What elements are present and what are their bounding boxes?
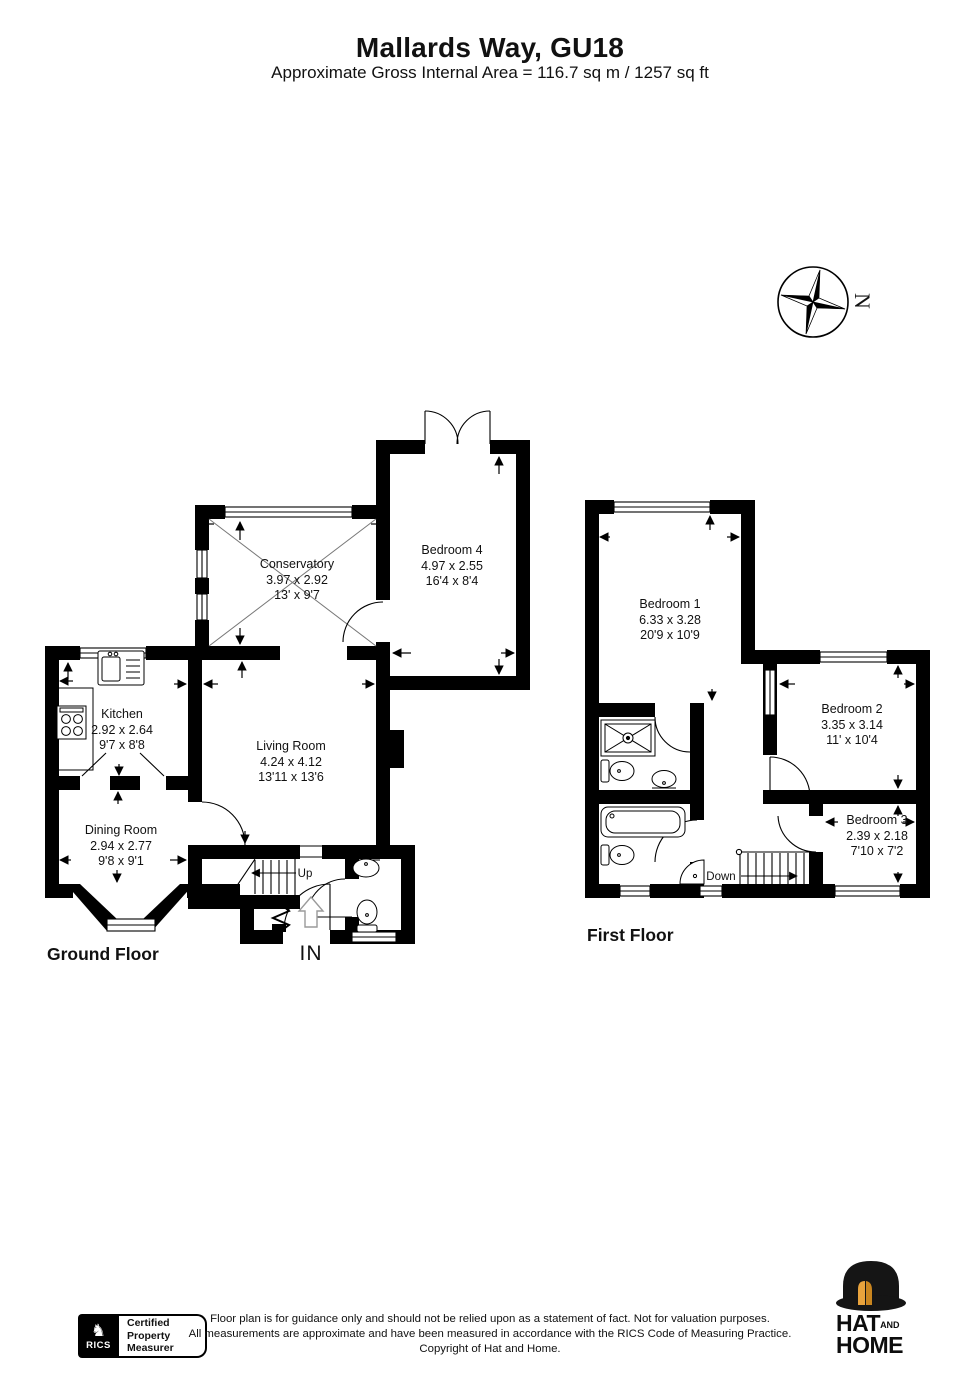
room-metric-dims: 3.97 x 2.92 (260, 572, 334, 588)
logo-word-and: AND (880, 1320, 900, 1330)
disclaimer-line-2: All measurements are approximate and hav… (140, 1327, 840, 1342)
bathroom-corner-sink-icon (680, 860, 704, 884)
rics-logo: ♞ RICS (78, 1314, 119, 1358)
room-imperial-dims: 11' x 10'4 (821, 733, 883, 749)
room-imperial-dims: 7'10 x 7'2 (846, 844, 908, 860)
disclaimer-text: Floor plan is for guidance only and shou… (140, 1312, 840, 1358)
room-name: Bedroom 1 (639, 597, 701, 613)
room-name: Bedroom 3 (846, 813, 908, 829)
disclaimer-line-3: Copyright of Hat and Home. (140, 1342, 840, 1357)
bathroom-toilet-icon (601, 845, 634, 865)
room-name: Living Room (256, 739, 325, 755)
shower-icon (601, 720, 655, 756)
room-label-living-room: Living Room 4.24 x 4.12 13'11 x 13'6 (256, 739, 325, 786)
room-metric-dims: 3.35 x 3.14 (821, 717, 883, 733)
room-imperial-dims: 20'9 x 10'9 (639, 628, 701, 644)
room-imperial-dims: 13' x 9'7 (260, 588, 334, 604)
room-name: Kitchen (91, 707, 153, 723)
ground-floor-title: Ground Floor (47, 944, 159, 965)
room-name: Conservatory (260, 557, 334, 573)
rics-lion-icon: ♞ (91, 1322, 106, 1339)
rics-brand-text: RICS (86, 1340, 111, 1351)
first-floor-doors (655, 717, 816, 862)
stairs-up (232, 859, 296, 895)
room-metric-dims: 6.33 x 3.28 (639, 612, 701, 628)
room-imperial-dims: 16'4 x 8'4 (421, 574, 483, 590)
room-metric-dims: 2.94 x 2.77 (85, 838, 157, 854)
room-imperial-dims: 9'8 x 9'1 (85, 854, 157, 870)
room-label-dining-room: Dining Room 2.94 x 2.77 9'8 x 9'1 (85, 823, 157, 870)
kitchen-sink (98, 651, 144, 685)
bowler-hat-icon (836, 1261, 906, 1311)
room-name: Dining Room (85, 823, 157, 839)
room-label-bedroom-2: Bedroom 2 3.35 x 3.14 11' x 10'4 (821, 702, 883, 749)
ensuite-sink-icon (652, 771, 676, 789)
room-label-bedroom-4: Bedroom 4 4.97 x 2.55 16'4 x 8'4 (421, 543, 483, 590)
room-name: Bedroom 4 (421, 543, 483, 559)
compass-north-label: N (849, 293, 875, 309)
stairs-down-label: Down (706, 871, 735, 883)
room-name: Bedroom 2 (821, 702, 883, 718)
room-imperial-dims: 9'7 x 8'8 (91, 738, 153, 754)
room-metric-dims: 4.24 x 4.12 (256, 754, 325, 770)
first-floor-title: First Floor (587, 925, 674, 946)
bath-icon (601, 807, 685, 837)
room-label-bedroom-3: Bedroom 3 2.39 x 2.18 7'10 x 7'2 (846, 813, 908, 860)
room-label-bedroom-1: Bedroom 1 6.33 x 3.28 20'9 x 10'9 (639, 597, 701, 644)
room-metric-dims: 2.92 x 2.64 (91, 722, 153, 738)
stairs-down (736, 849, 809, 884)
room-label-conservatory: Conservatory 3.97 x 2.92 13' x 9'7 (260, 557, 334, 604)
entrance-in-label: IN (300, 942, 323, 966)
disclaimer-line-1: Floor plan is for guidance only and shou… (140, 1312, 840, 1327)
wc-toilet-icon (357, 900, 377, 932)
logo-word-home: HOME (836, 1332, 903, 1358)
stairs-up-label: Up (298, 868, 313, 880)
wc-sink-icon (352, 859, 380, 877)
room-metric-dims: 2.39 x 2.18 (846, 828, 908, 844)
room-label-kitchen: Kitchen 2.92 x 2.64 9'7 x 8'8 (91, 707, 153, 754)
room-metric-dims: 4.97 x 2.55 (421, 558, 483, 574)
room-imperial-dims: 13'11 x 13'6 (256, 770, 325, 786)
compass-icon (778, 267, 848, 337)
hat-and-home-logo-text: HATAND HOME (836, 1314, 926, 1358)
hob-icon (57, 706, 86, 739)
ensuite-toilet-icon (601, 760, 634, 782)
floorplan-page: Mallards Way, GU18 Approximate Gross Int… (0, 0, 980, 1386)
in-arrow-icon (299, 897, 323, 927)
floor-plan-drawing (0, 0, 980, 1386)
